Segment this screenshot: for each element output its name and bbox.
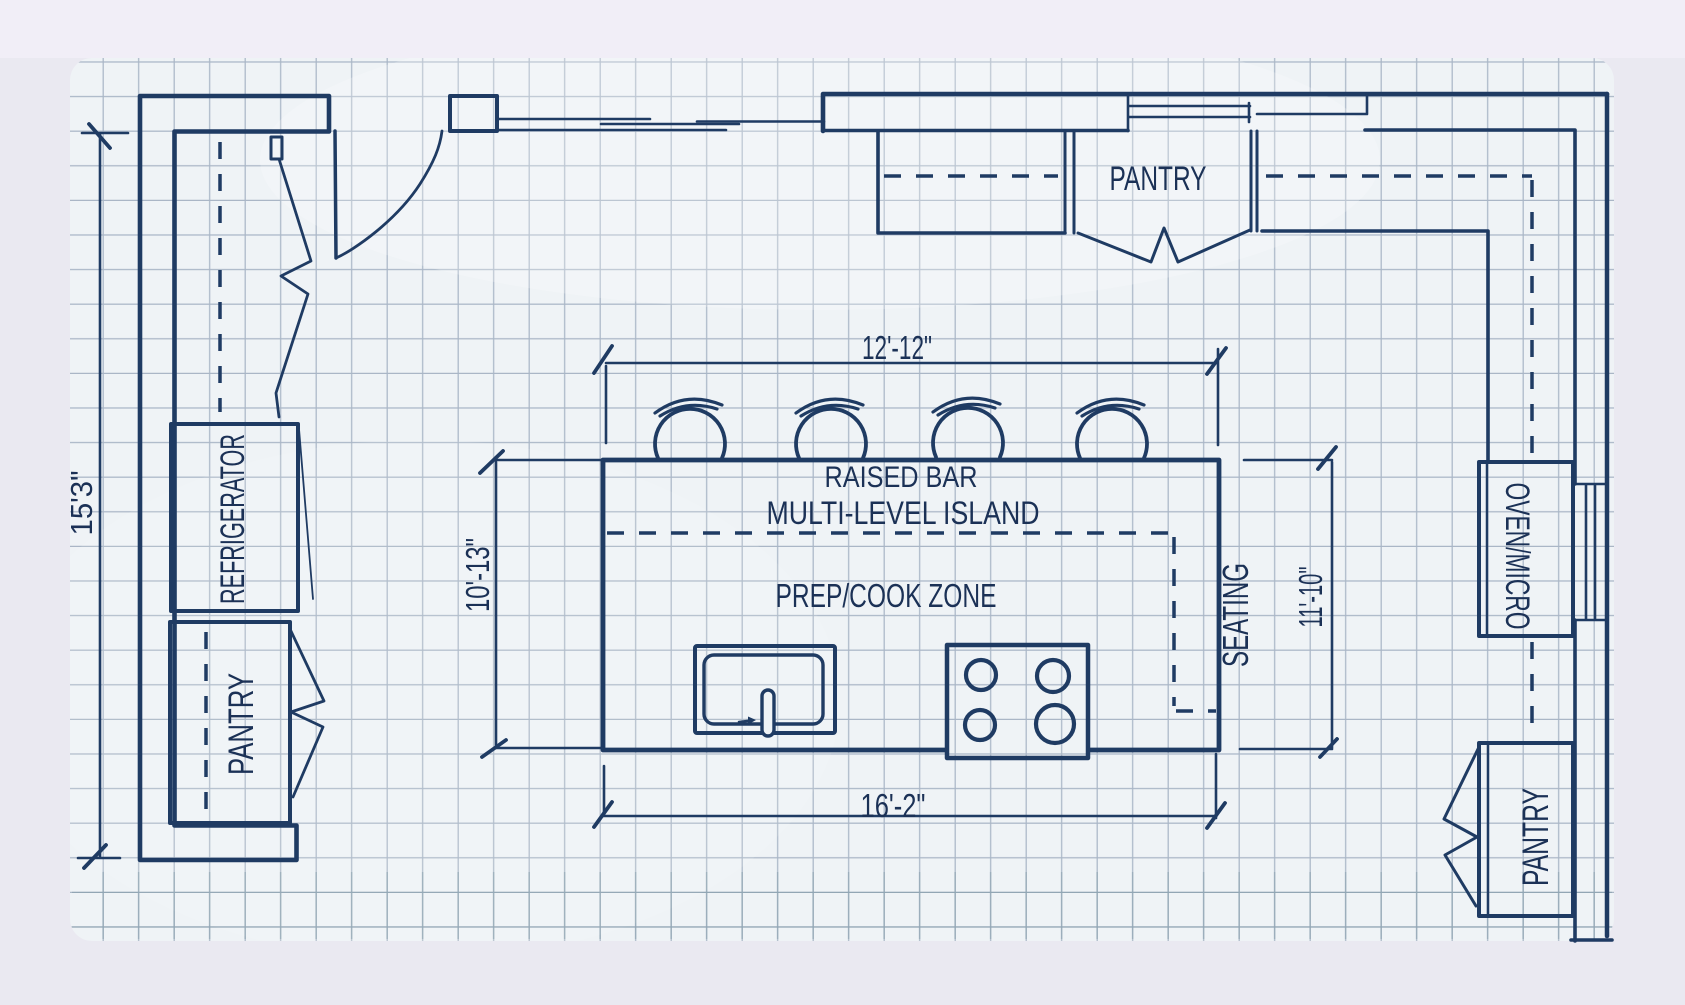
svg-text:REFRIGERATOR: REFRIGERATOR [214,434,252,604]
svg-text:16'-2": 16'-2" [861,787,926,824]
svg-text:OVEN/MICRO: OVEN/MICRO [1498,483,1536,630]
svg-text:12'-12": 12'-12" [862,329,932,366]
svg-text:11'-10": 11'-10" [1292,567,1329,628]
svg-text:10'-13": 10'-13" [459,538,496,612]
svg-text:PANTRY: PANTRY [1515,788,1556,886]
svg-text:MULTI-LEVEL ISLAND: MULTI-LEVEL ISLAND [767,495,1040,531]
svg-text:15'3": 15'3" [64,471,99,536]
svg-text:PREP/COOK ZONE: PREP/COOK ZONE [776,577,997,614]
svg-text:SEATING: SEATING [1215,563,1256,667]
svg-text:RAISED BAR: RAISED BAR [825,461,978,494]
svg-text:PANTRY: PANTRY [1110,160,1207,198]
svg-text:PANTRY: PANTRY [222,673,261,775]
